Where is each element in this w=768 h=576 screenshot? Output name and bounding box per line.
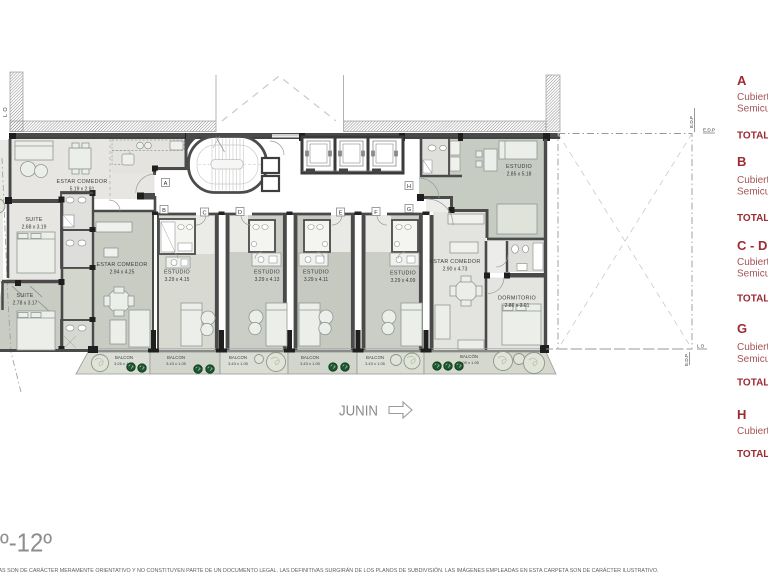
svg-text:ESTUDIO: ESTUDIO	[254, 270, 280, 276]
svg-text:3.43 x 1.05: 3.43 x 1.05	[300, 361, 321, 366]
svg-text:JUNIN: JUNIN	[339, 403, 378, 420]
svg-text:Cubierta: 28,90: Cubierta: 28,90	[737, 257, 768, 268]
svg-text:BALCON: BALCON	[366, 355, 384, 360]
svg-text:AS SON DE CARÁCTER MERAMENTE O: AS SON DE CARÁCTER MERAMENTE ORIENTATIVO…	[0, 567, 659, 574]
svg-text:D: D	[238, 210, 242, 216]
svg-text:TOTAL: 39,7: TOTAL: 39,7	[737, 213, 768, 224]
svg-text:Semicubierta: 3,6: Semicubierta: 3,6	[737, 269, 768, 280]
svg-text:G: G	[737, 321, 747, 336]
svg-text:SUITE: SUITE	[25, 217, 42, 223]
svg-text:ESTUDIO: ESTUDIO	[506, 164, 532, 170]
svg-text:A: A	[164, 181, 168, 187]
svg-text:ESTAR COMEDOR: ESTAR COMEDOR	[429, 259, 480, 265]
svg-text:Cubierta: 44,60: Cubierta: 44,60	[737, 342, 768, 353]
svg-text:TOTAL: 39,8: TOTAL: 39,8	[737, 449, 768, 460]
svg-text:B: B	[737, 154, 746, 169]
svg-text:BALCON: BALCON	[115, 355, 133, 360]
svg-text:E.D.P: E.D.P	[703, 128, 715, 133]
svg-text:B: B	[162, 208, 166, 214]
svg-text:2.90 x 4.73: 2.90 x 4.73	[443, 267, 468, 273]
svg-text:L O: L O	[3, 107, 9, 117]
svg-text:Semicubierta: 3,6: Semicubierta: 3,6	[737, 187, 768, 198]
svg-text:TOTAL: 42,0: TOTAL: 42,0	[737, 131, 768, 142]
svg-text:BALCÓN: BALCÓN	[460, 354, 478, 359]
svg-text:2.85 x 5.18: 2.85 x 5.18	[507, 172, 532, 178]
svg-text:G: G	[407, 207, 411, 213]
svg-text:Cubierta: 38,40: Cubierta: 38,40	[737, 92, 768, 103]
svg-text:Cubierta: 36,10: Cubierta: 36,10	[737, 175, 768, 186]
svg-text:L O: L O	[697, 344, 705, 349]
svg-text:E.D.P: E.D.P	[689, 116, 694, 128]
svg-text:Semicubierta: 6,4: Semicubierta: 6,4	[737, 354, 768, 365]
svg-text:º-12º: º-12º	[0, 528, 52, 558]
svg-text:3.29 x 4.09: 3.29 x 4.09	[391, 278, 416, 284]
svg-text:3.29 x 4.15: 3.29 x 4.15	[165, 277, 190, 283]
svg-text:2.94 x 4.25: 2.94 x 4.25	[110, 270, 135, 276]
svg-text:Cubierta: 39,80: Cubierta: 39,80	[737, 426, 768, 437]
svg-text:H: H	[407, 184, 411, 190]
svg-text:3.43 x 1.05: 3.43 x 1.05	[365, 361, 386, 366]
svg-text:3.29 x 4.13: 3.29 x 4.13	[255, 277, 280, 283]
svg-text:H: H	[737, 407, 746, 422]
svg-text:Semicubierta: 3,6: Semicubierta: 3,6	[737, 104, 768, 115]
svg-text:F: F	[374, 210, 378, 216]
svg-text:SUITE: SUITE	[16, 293, 33, 299]
svg-text:TOTAL: 51,0: TOTAL: 51,0	[737, 378, 768, 389]
svg-text:A: A	[737, 73, 747, 88]
svg-text:3.43 x 1.05: 3.43 x 1.05	[166, 361, 187, 366]
svg-text:ESTAR COMEDOR: ESTAR COMEDOR	[56, 179, 107, 185]
svg-text:3.43 x 1.05: 3.43 x 1.05	[228, 361, 249, 366]
svg-text:ESTUDIO: ESTUDIO	[390, 271, 416, 277]
svg-text:5.19 x 2.91: 5.19 x 2.91	[70, 187, 95, 193]
svg-text:E.D.P: E.D.P	[684, 354, 689, 366]
svg-text:C - D: C - D	[737, 238, 767, 253]
svg-text:3.29 x 4.11: 3.29 x 4.11	[304, 277, 329, 283]
svg-text:E: E	[339, 210, 343, 216]
svg-text:ESTAR COMEDOR: ESTAR COMEDOR	[96, 262, 147, 268]
svg-text:BALCON: BALCON	[301, 355, 319, 360]
svg-text:2.68 x 3.19: 2.68 x 3.19	[22, 225, 47, 231]
svg-text:ESTUDIO: ESTUDIO	[164, 270, 190, 276]
svg-text:C: C	[202, 210, 206, 216]
svg-text:2.86 x 3.01: 2.86 x 3.01	[505, 303, 530, 309]
svg-text:2.78 x 3.17: 2.78 x 3.17	[13, 301, 38, 307]
svg-text:DORMITORIO: DORMITORIO	[498, 296, 536, 302]
svg-text:ESTUDIO: ESTUDIO	[303, 270, 329, 276]
svg-text:BALCON: BALCON	[167, 355, 185, 360]
svg-text:TOTAL: 32,5: TOTAL: 32,5	[737, 294, 768, 305]
svg-text:BALCON: BALCON	[229, 355, 247, 360]
